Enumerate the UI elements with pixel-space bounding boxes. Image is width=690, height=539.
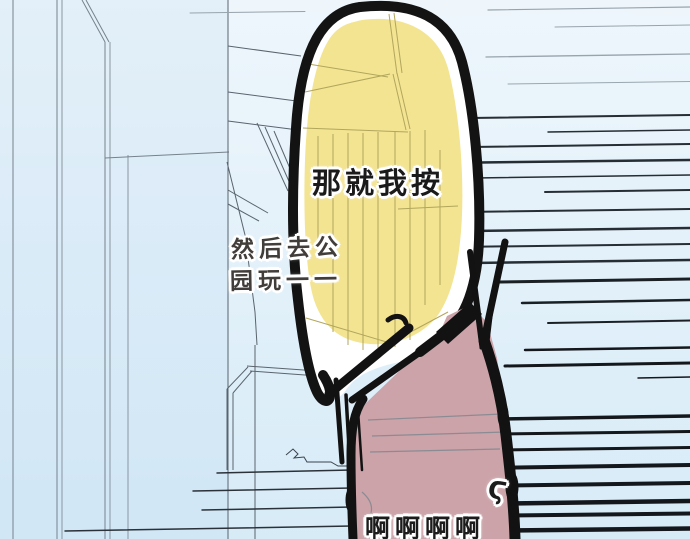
speech-aside-line1: 然后去公 [231,228,344,265]
panel-art [0,0,690,539]
comic-panel: 那就我按 然后去公 园玩一一 啊啊啊啊 Ϛ [0,0,690,539]
speech-aside-line2: 园玩一一 [230,260,343,296]
scream-text: 啊啊啊啊 [365,509,485,539]
speech-main: 那就我按 [312,160,444,202]
